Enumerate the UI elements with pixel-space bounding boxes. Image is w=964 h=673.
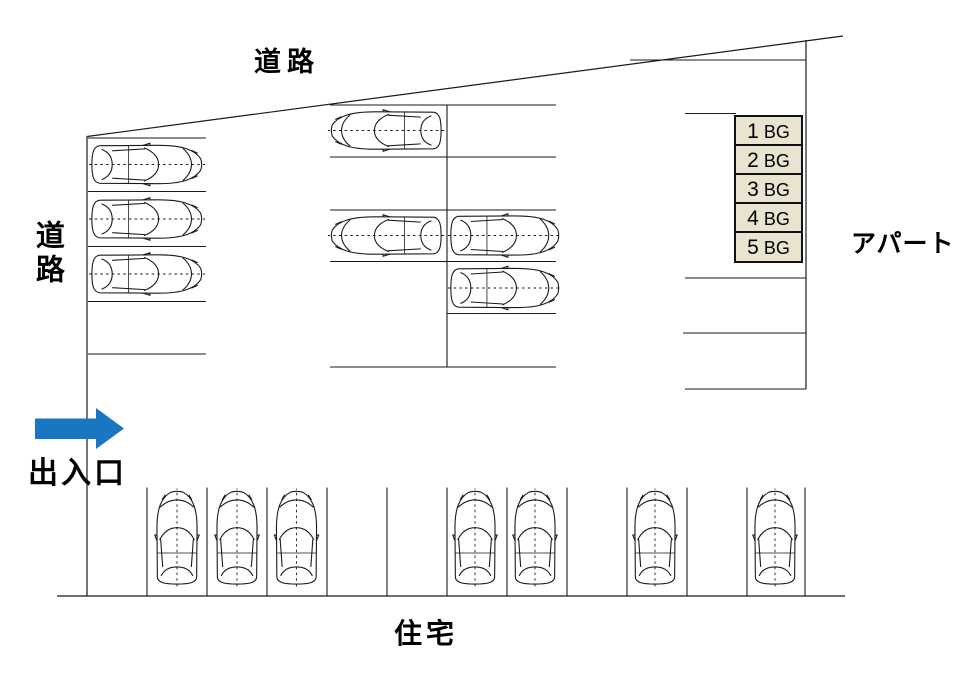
residence-label: 住宅 [394, 618, 458, 650]
entrance-label: 出入口 [28, 457, 127, 492]
lot-map-drawing [0, 0, 964, 673]
bay-box-1: 1 BG [734, 115, 803, 147]
bay-box-5: 5 BG [734, 231, 803, 263]
car-icon [155, 488, 199, 586]
car-icon [274, 488, 318, 586]
bay-code: BG [764, 152, 790, 170]
bay-number: 1 [747, 121, 759, 142]
bay-box-4: 4 BG [734, 202, 803, 234]
bay-box-3: 3 BG [734, 173, 803, 205]
car-icon [89, 143, 205, 185]
road-top-label: 道路 [254, 47, 320, 78]
road-left-label: 道路 [30, 220, 63, 288]
apartment-label: アパート [851, 230, 955, 259]
parked-cars [89, 110, 797, 587]
bay-box-2: 2 BG [734, 144, 803, 176]
car-icon [633, 488, 677, 586]
car-icon [448, 266, 562, 309]
car-icon [513, 488, 557, 586]
car-icon [328, 215, 444, 256]
bay-number: 2 [747, 150, 759, 171]
bay-number-column: 1 BG 2 BG 3 BG 4 BG 5 BG [734, 115, 803, 263]
bay-code: BG [764, 210, 790, 228]
car-icon [753, 488, 797, 586]
bay-code: BG [764, 181, 790, 199]
bay-number: 3 [747, 179, 759, 200]
car-icon [328, 110, 444, 151]
road-edge-diagonal [87, 36, 843, 137]
bay-number: 4 [747, 208, 759, 229]
parking-lot-diagram: 道路 道路 アパート 出入口 住宅 1 BG 2 BG 3 BG 4 BG 5 … [0, 0, 964, 673]
bay-code: BG [764, 123, 790, 141]
car-icon [215, 488, 259, 586]
car-icon [89, 253, 205, 295]
car-icon [89, 198, 205, 240]
bay-code: BG [764, 239, 790, 257]
car-icon [448, 214, 562, 257]
entrance-arrow-icon [35, 408, 124, 449]
car-icon [453, 488, 497, 586]
bay-number: 5 [747, 237, 759, 258]
